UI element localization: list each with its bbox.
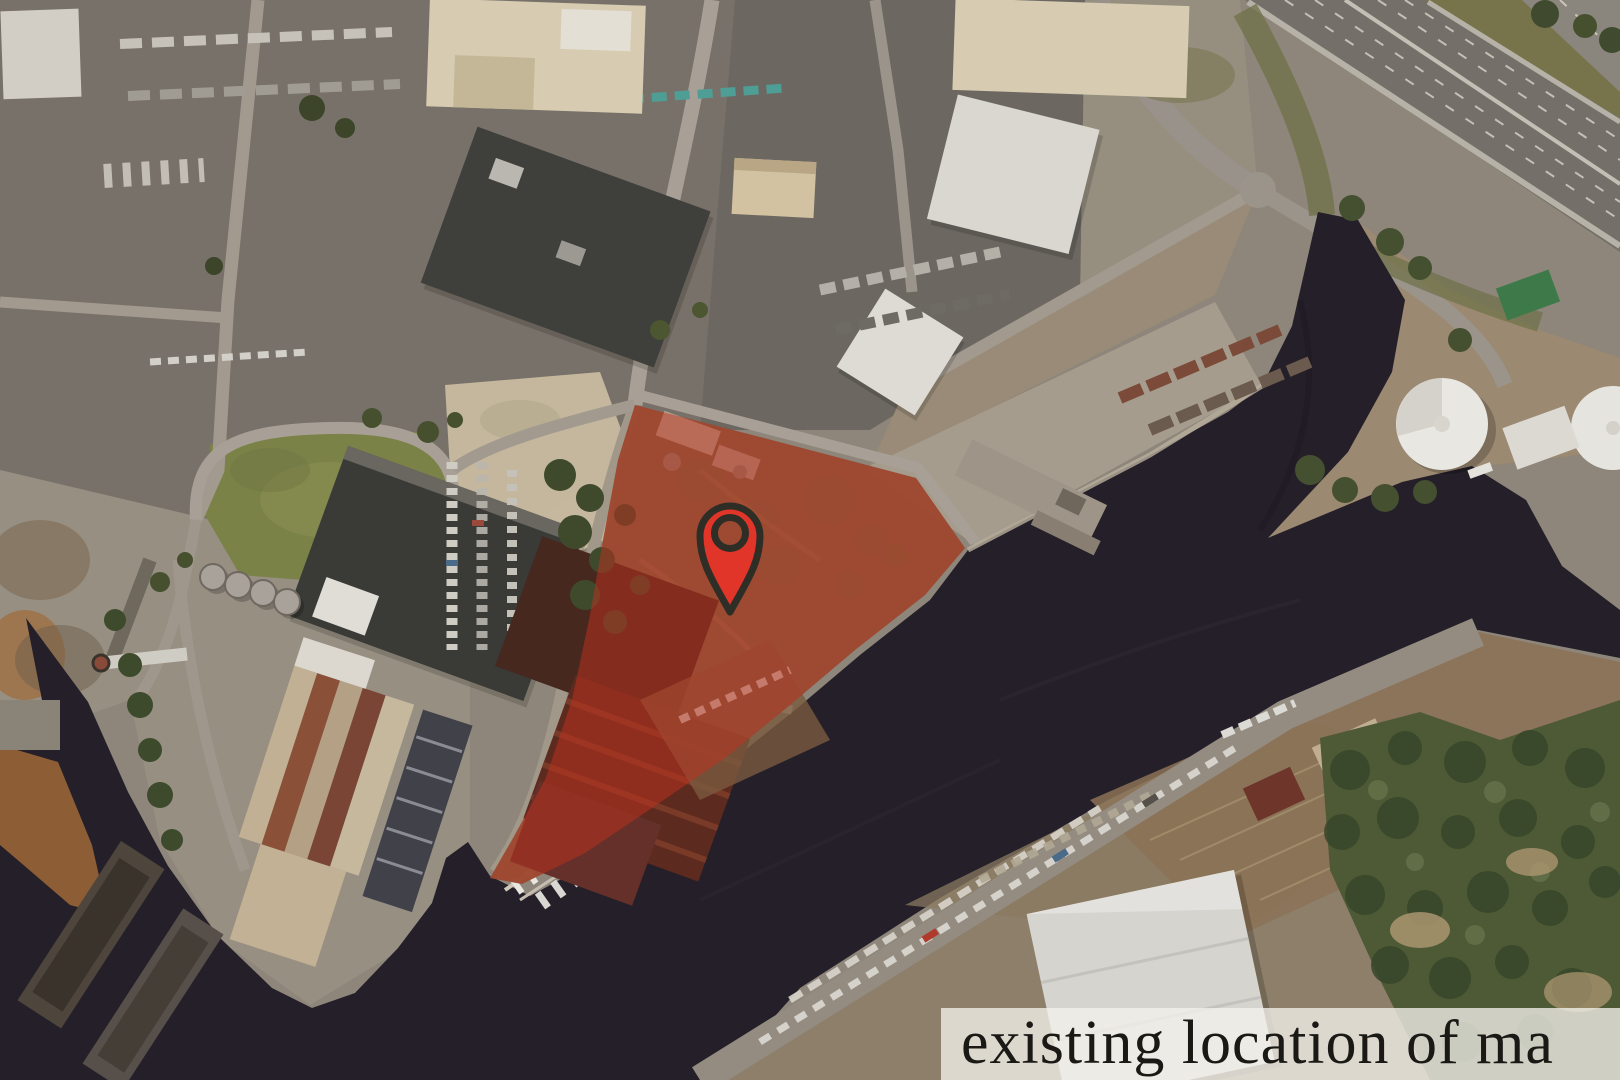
caption-banner: existing location of ma (941, 1008, 1620, 1080)
aerial-map: existing location of ma (0, 0, 1620, 1080)
silo (225, 572, 251, 598)
silo (250, 580, 276, 606)
caption-text: existing location of ma (961, 1009, 1554, 1077)
satellite-imagery (0, 0, 1620, 1080)
silo (274, 589, 300, 615)
silo (200, 564, 226, 590)
chimney-top (93, 655, 109, 671)
